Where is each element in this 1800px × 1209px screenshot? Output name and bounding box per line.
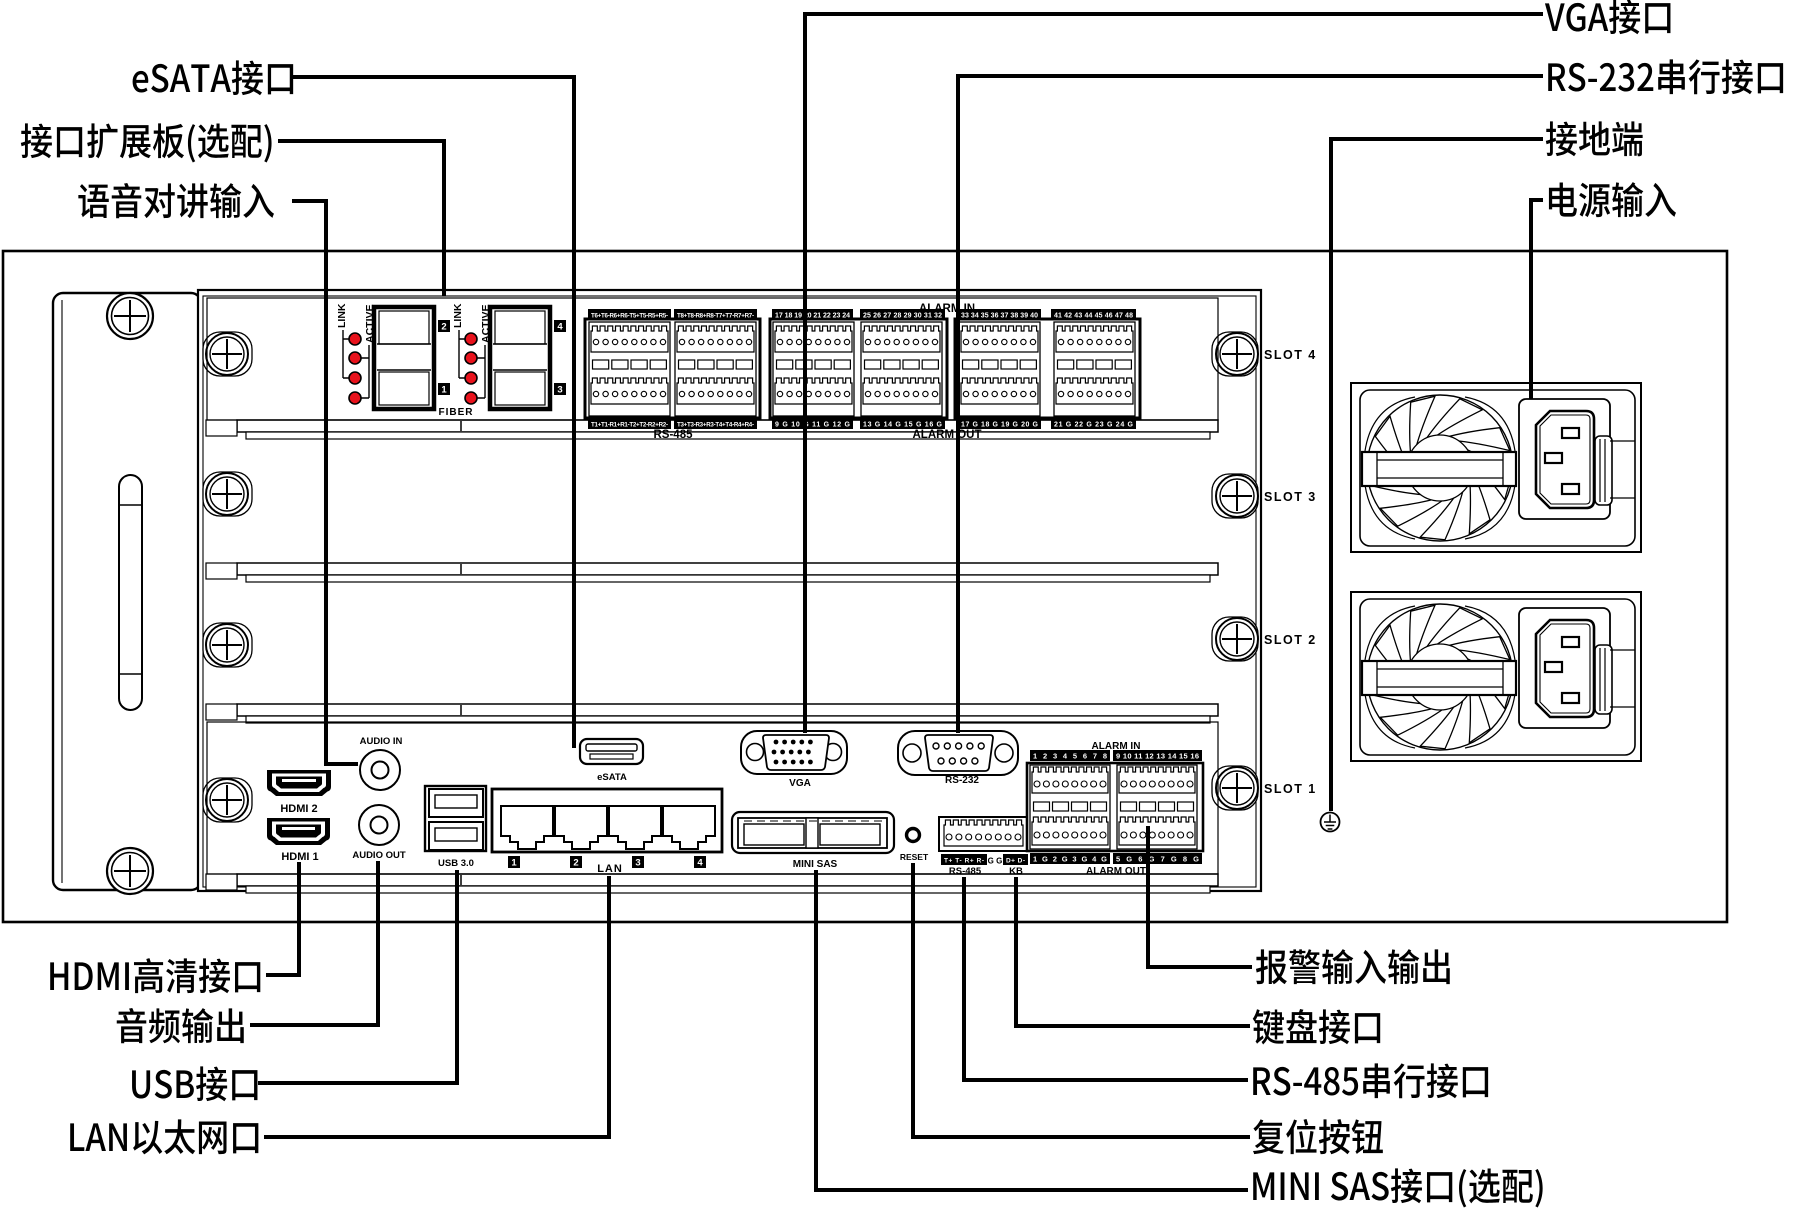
svg-text:T6+T6-R6+R6-T5+T5-R5+R5-: T6+T6-R6+R6-T5+T5-R5+R5- — [591, 312, 668, 319]
svg-text:LAN: LAN — [597, 863, 623, 875]
svg-text:RS-485: RS-485 — [949, 866, 982, 877]
svg-text:4: 4 — [557, 322, 563, 333]
svg-text:HDMI 2: HDMI 2 — [280, 803, 317, 815]
svg-text:SLOT 4: SLOT 4 — [1264, 348, 1317, 362]
svg-text:SLOT 1: SLOT 1 — [1264, 782, 1317, 796]
svg-text:MINI SAS: MINI SAS — [793, 859, 838, 870]
svg-text:T3+T3-R3+R3-T4+T4-R4+R4-: T3+T3-R3+R3-T4+T4-R4+R4- — [677, 421, 754, 428]
svg-text:VGA: VGA — [789, 778, 811, 789]
svg-text:KB: KB — [1009, 866, 1023, 877]
svg-text:ALARM IN: ALARM IN — [1092, 741, 1141, 752]
svg-text:9 G 10 G 11 G 12 G: 9 G 10 G 11 G 12 G — [775, 421, 851, 428]
svg-text:1 2 3 4 5 6 7 8: 1 2 3 4 5 6 7 8 — [1033, 751, 1107, 760]
svg-text:41 42 43 44 45 46 47 48: 41 42 43 44 45 46 47 48 — [1054, 312, 1133, 319]
svg-text:G G: G G — [988, 857, 1003, 866]
svg-text:ALARM IN: ALARM IN — [919, 303, 975, 315]
svg-text:1: 1 — [511, 858, 517, 869]
svg-text:5 G 6 G 7 G 8 G: 5 G 6 G 7 G 8 G — [1116, 854, 1199, 863]
svg-text:FIBER: FIBER — [439, 407, 474, 418]
svg-text:2: 2 — [441, 322, 446, 333]
svg-text:LINK: LINK — [336, 303, 348, 328]
svg-text:13 G 14 G 15 G 16 G: 13 G 14 G 15 G 16 G — [863, 421, 943, 428]
svg-text:T1+T1-R1+R1-T2+T2-R2+R2-: T1+T1-R1+R1-T2+T2-R2+R2- — [591, 421, 668, 428]
svg-text:4: 4 — [697, 858, 703, 869]
svg-text:RS-232: RS-232 — [945, 775, 979, 786]
svg-text:9 10 11 12 13 14 15 16: 9 10 11 12 13 14 15 16 — [1116, 751, 1199, 760]
svg-text:21 G 22 G 23 G 24 G: 21 G 22 G 23 G 24 G — [1054, 421, 1134, 428]
svg-text:1 G 2 G 3 G 4 G: 1 G 2 G 3 G 4 G — [1033, 854, 1107, 863]
svg-text:3: 3 — [635, 858, 640, 869]
svg-text:17 G 18 G 19 G 20 G: 17 G 18 G 19 G 20 G — [961, 421, 1039, 428]
svg-text:RESET: RESET — [900, 852, 929, 862]
svg-text:1: 1 — [441, 385, 447, 396]
svg-text:3: 3 — [557, 385, 562, 396]
svg-text:HDMI 1: HDMI 1 — [281, 851, 318, 863]
svg-text:ALARM OUT: ALARM OUT — [1086, 866, 1146, 877]
svg-text:ALARM OUT: ALARM OUT — [913, 429, 982, 441]
svg-text:eSATA: eSATA — [597, 772, 627, 783]
svg-text:AUDIO IN: AUDIO IN — [360, 736, 403, 747]
svg-text:T+ T- R+ R-: T+ T- R+ R- — [944, 857, 984, 864]
svg-text:SLOT 2: SLOT 2 — [1264, 633, 1317, 647]
svg-text:SLOT 3: SLOT 3 — [1264, 490, 1317, 504]
svg-text:2: 2 — [573, 858, 578, 869]
svg-text:RS-485: RS-485 — [654, 429, 694, 441]
svg-text:LINK: LINK — [452, 303, 464, 328]
svg-text:17 18 19 20 21 22 23 24: 17 18 19 20 21 22 23 24 — [775, 312, 850, 319]
svg-text:AUDIO OUT: AUDIO OUT — [352, 850, 406, 861]
svg-text:T8+T8-R8+R8-T7+T7-R7+R7-: T8+T8-R8+R8-T7+T7-R7+R7- — [677, 312, 754, 319]
svg-text:USB 3.0: USB 3.0 — [438, 858, 474, 869]
svg-text:D+ D-: D+ D- — [1006, 857, 1025, 864]
